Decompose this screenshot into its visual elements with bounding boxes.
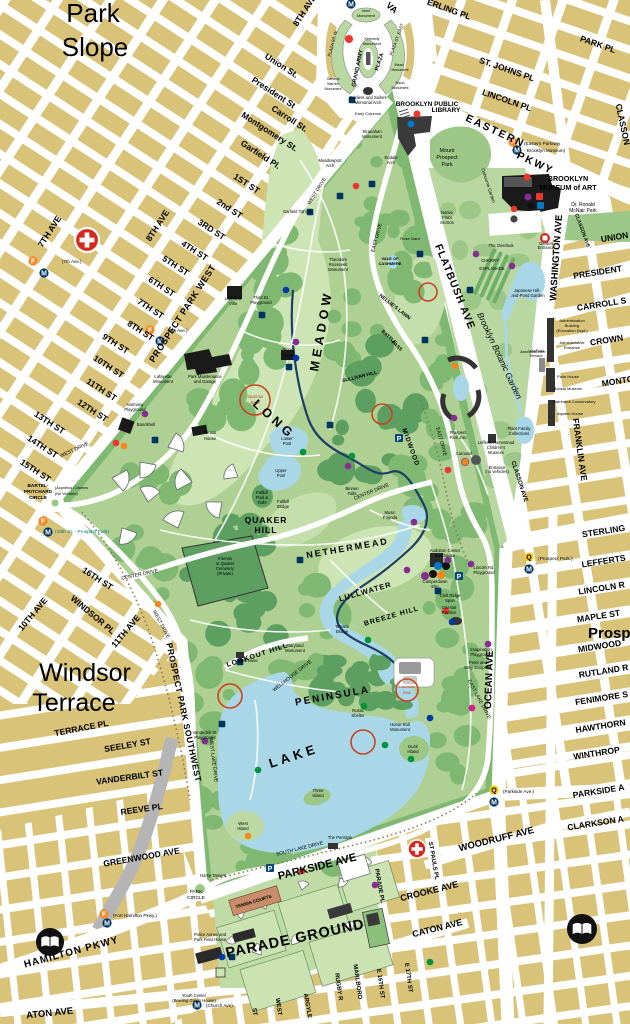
svg-text:BROOKLYN: BROOKLYN bbox=[548, 174, 588, 183]
svg-text:Monument: Monument bbox=[325, 87, 342, 91]
svg-text:Slope: Slope bbox=[62, 32, 129, 62]
svg-text:Playground: Playground bbox=[194, 735, 216, 740]
svg-text:Monument: Monument bbox=[328, 267, 349, 272]
svg-text:Q: Q bbox=[526, 555, 532, 562]
svg-text:Windsor: Windsor bbox=[39, 659, 131, 687]
svg-text:Falls: Falls bbox=[258, 500, 267, 505]
svg-text:(Fort Hamilton Pkwy.): (Fort Hamilton Pkwy.) bbox=[113, 913, 157, 918]
svg-text:Tennis: Tennis bbox=[204, 430, 216, 435]
svg-text:(Acanthus Columns: (Acanthus Columns bbox=[55, 486, 88, 490]
svg-text:CIRCLE: CIRCLE bbox=[187, 895, 205, 901]
svg-text:(no vehicles): (no vehicles) bbox=[485, 469, 509, 474]
svg-text:F: F bbox=[31, 259, 36, 266]
svg-text:Collections: Collections bbox=[509, 431, 529, 436]
svg-text:Monument: Monument bbox=[392, 86, 409, 90]
svg-text:Monument: Monument bbox=[390, 727, 411, 732]
svg-text:ESPLANADE: ESPLANADE bbox=[479, 266, 504, 271]
svg-text:Q: Q bbox=[491, 788, 497, 795]
svg-text:Irene: Irene bbox=[362, 9, 371, 13]
svg-text:Palm House: Palm House bbox=[557, 374, 580, 379]
svg-text:CHERRY: CHERRY bbox=[481, 258, 499, 263]
svg-text:Falls: Falls bbox=[348, 491, 357, 496]
svg-text:Entrance: Entrance bbox=[564, 345, 581, 350]
svg-text:General: General bbox=[327, 77, 340, 81]
svg-text:Arch: Arch bbox=[326, 163, 335, 168]
svg-text:Monument: Monument bbox=[357, 14, 376, 18]
svg-text:Playground: Playground bbox=[470, 652, 492, 657]
svg-text:M: M bbox=[41, 271, 47, 278]
svg-text:Annual Border: Annual Border bbox=[520, 349, 546, 354]
svg-text:(No Vehicles): (No Vehicles) bbox=[55, 492, 78, 496]
svg-text:P: P bbox=[268, 866, 273, 873]
svg-text:Entrance: Entrance bbox=[538, 245, 555, 250]
svg-text:Rink: Rink bbox=[403, 690, 412, 695]
svg-text:Warren: Warren bbox=[327, 82, 339, 86]
svg-text:M: M bbox=[194, 1003, 200, 1010]
svg-text:Park: Park bbox=[441, 162, 452, 168]
svg-text:Prospect: Prospect bbox=[436, 155, 458, 161]
svg-text:Playground: Playground bbox=[473, 570, 495, 575]
svg-text:Bridge: Bridge bbox=[277, 504, 290, 509]
svg-text:M: M bbox=[45, 530, 51, 537]
svg-text:(Education Dept.): (Education Dept.) bbox=[556, 328, 588, 333]
svg-text:Mead: Mead bbox=[395, 63, 404, 67]
svg-text:Playground: Playground bbox=[250, 300, 272, 305]
svg-text:Pool: Pool bbox=[283, 441, 291, 446]
svg-text:PARK: PARK bbox=[190, 889, 204, 895]
svg-text:and-Pond Garden: and-Pond Garden bbox=[511, 293, 545, 298]
svg-text:House: House bbox=[204, 436, 217, 441]
svg-text:F: F bbox=[41, 519, 46, 526]
svg-text:Boathouse: Boathouse bbox=[435, 553, 456, 558]
svg-text:Island: Island bbox=[312, 793, 324, 798]
svg-text:Early Columns: Early Columns bbox=[355, 111, 381, 116]
svg-text:Bandshell: Bandshell bbox=[137, 422, 155, 427]
svg-text:Mount: Mount bbox=[440, 148, 455, 154]
svg-text:(Bowling Green House): (Bowling Green House) bbox=[172, 998, 216, 1003]
svg-text:Island: Island bbox=[407, 749, 419, 754]
svg-text:ST: ST bbox=[250, 1008, 257, 1017]
svg-text:Bizun: Bizun bbox=[396, 81, 405, 85]
svg-text:Monument: Monument bbox=[285, 648, 306, 653]
svg-text:Pagoda: Pagoda bbox=[383, 515, 398, 520]
svg-text:P: P bbox=[397, 436, 402, 443]
svg-text:Horse Tamers: Horse Tamers bbox=[200, 873, 226, 878]
svg-text:Park Zoo: Park Zoo bbox=[450, 435, 468, 440]
svg-text:(Private): (Private) bbox=[217, 571, 233, 576]
svg-text:CASHMERE: CASHMERE bbox=[379, 261, 402, 266]
svg-text:Aquatic House: Aquatic House bbox=[557, 411, 584, 416]
svg-text:CIRCLE: CIRCLE bbox=[29, 495, 48, 501]
svg-text:Pool: Pool bbox=[277, 473, 285, 478]
svg-text:Wellhouse: Wellhouse bbox=[238, 658, 258, 663]
svg-text:(Prospect Park.): (Prospect Park.) bbox=[538, 556, 573, 562]
svg-text:Section: Section bbox=[440, 220, 455, 225]
svg-text:McNair Park: McNair Park bbox=[569, 208, 597, 214]
svg-text:PRITCHARD: PRITCHARD bbox=[24, 489, 53, 495]
svg-text:Pavilion: Pavilion bbox=[442, 610, 457, 615]
svg-text:The Peristyle: The Peristyle bbox=[328, 835, 353, 840]
svg-text:BARTEL-: BARTEL- bbox=[27, 483, 48, 489]
svg-text:HILL: HILL bbox=[255, 525, 278, 535]
svg-text:QUAKER: QUAKER bbox=[245, 515, 288, 525]
svg-text:M: M bbox=[526, 567, 532, 574]
svg-text:(15th St. - Prospect Park): (15th St. - Prospect Park) bbox=[55, 529, 110, 535]
svg-text:Willy Sculpture: Willy Sculpture bbox=[464, 665, 492, 670]
svg-text:House: House bbox=[282, 353, 295, 358]
svg-text:Bonsai Museum: Bonsai Museum bbox=[554, 386, 583, 391]
svg-text:Memorial Arch: Memorial Arch bbox=[355, 100, 382, 105]
svg-text:The Overlook: The Overlook bbox=[488, 243, 514, 248]
svg-text:Picnic: Picnic bbox=[282, 347, 293, 352]
svg-text:M: M bbox=[348, 2, 354, 9]
svg-text:Playground: Playground bbox=[124, 407, 146, 412]
svg-text:(Church Ave): (Church Ave) bbox=[206, 1003, 233, 1008]
svg-text:LIBRARY: LIBRARY bbox=[432, 107, 461, 114]
svg-text:Monument: Monument bbox=[153, 379, 174, 384]
svg-text:Monument: Monument bbox=[363, 42, 382, 46]
svg-text:Kennedy: Kennedy bbox=[365, 37, 380, 41]
svg-text:Bridge: Bridge bbox=[336, 629, 349, 634]
svg-text:Villa: Villa bbox=[229, 301, 238, 306]
svg-text:Terrace: Terrace bbox=[32, 689, 115, 717]
svg-text:(Parkside Ave.): (Parkside Ave.) bbox=[503, 789, 535, 794]
svg-text:Steinhardt Conservatory: Steinhardt Conservatory bbox=[552, 399, 595, 404]
svg-text:and Garage: and Garage bbox=[194, 379, 217, 384]
svg-text:- Brooklyn Museum): - Brooklyn Museum) bbox=[524, 148, 566, 153]
svg-text:Garfield Tot Lot: Garfield Tot Lot bbox=[283, 209, 312, 214]
svg-text:Rose Gard: Rose Gard bbox=[400, 236, 419, 241]
svg-text:Monument: Monument bbox=[362, 134, 383, 139]
svg-text:P: P bbox=[457, 574, 462, 581]
svg-text:Arch: Arch bbox=[387, 160, 396, 165]
svg-text:Elm: Elm bbox=[431, 584, 439, 589]
svg-text:(Eastern Parkway: (Eastern Parkway bbox=[524, 141, 561, 146]
svg-text:Island: Island bbox=[237, 826, 249, 831]
svg-text:Monument: Monument bbox=[392, 68, 409, 72]
svg-text:Shelter: Shelter bbox=[351, 713, 365, 718]
svg-text:Park Field House: Park Field House bbox=[194, 937, 227, 942]
svg-text:F: F bbox=[102, 912, 107, 919]
svg-text:M: M bbox=[104, 921, 110, 928]
svg-text:Park: Park bbox=[66, 0, 120, 28]
svg-text:Lakeside: Lakeside bbox=[399, 684, 416, 689]
svg-text:MUSEUM of ART: MUSEUM of ART bbox=[539, 183, 597, 192]
svg-text:Museum: Museum bbox=[488, 450, 505, 455]
svg-text:Span: Span bbox=[445, 598, 455, 603]
svg-text:Carousel: Carousel bbox=[456, 451, 473, 456]
svg-text:(7th Ave.): (7th Ave.) bbox=[62, 259, 82, 264]
svg-text:M: M bbox=[491, 800, 497, 807]
